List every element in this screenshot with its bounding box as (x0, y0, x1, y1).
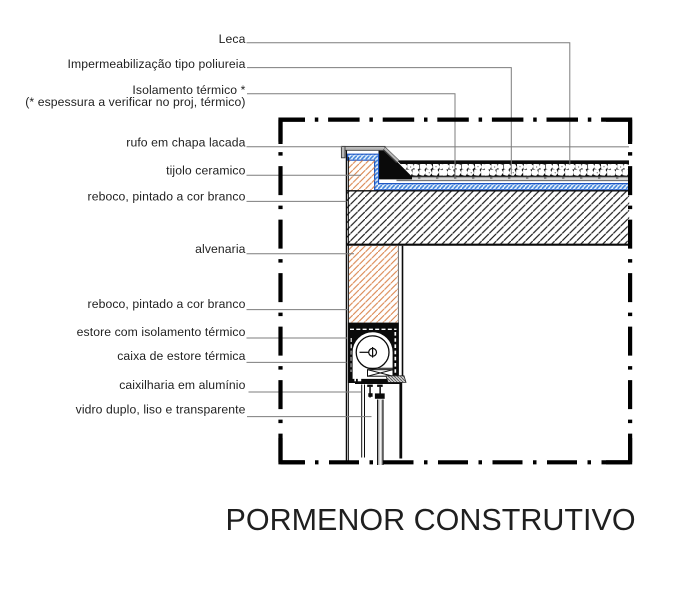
svg-text:vidro duplo, liso e transparen: vidro duplo, liso e transparente (76, 403, 246, 417)
svg-text:PORMENOR CONSTRUTIVO: PORMENOR CONSTRUTIVO (226, 503, 636, 537)
svg-text:tijolo ceramico: tijolo ceramico (166, 163, 246, 177)
svg-text:estore com isolamento térmico: estore com isolamento térmico (77, 325, 246, 339)
svg-text:Leca: Leca (219, 32, 246, 46)
svg-text:caixa de estore térmica: caixa de estore térmica (117, 349, 245, 363)
svg-text:Impermeabilização tipo poliure: Impermeabilização tipo poliureia (68, 57, 246, 71)
svg-text:(* espessura a verificar no pr: (* espessura a verificar no proj, térmic… (25, 95, 245, 109)
svg-text:reboco, pintado a cor branco: reboco, pintado a cor branco (88, 190, 246, 204)
svg-text:rufo em chapa lacada: rufo em chapa lacada (126, 135, 245, 149)
svg-text:reboco, pintado a cor branco: reboco, pintado a cor branco (88, 297, 246, 311)
svg-text:alvenaria: alvenaria (195, 242, 245, 256)
svg-text:caixilharia em alumínio: caixilharia em alumínio (119, 378, 245, 392)
